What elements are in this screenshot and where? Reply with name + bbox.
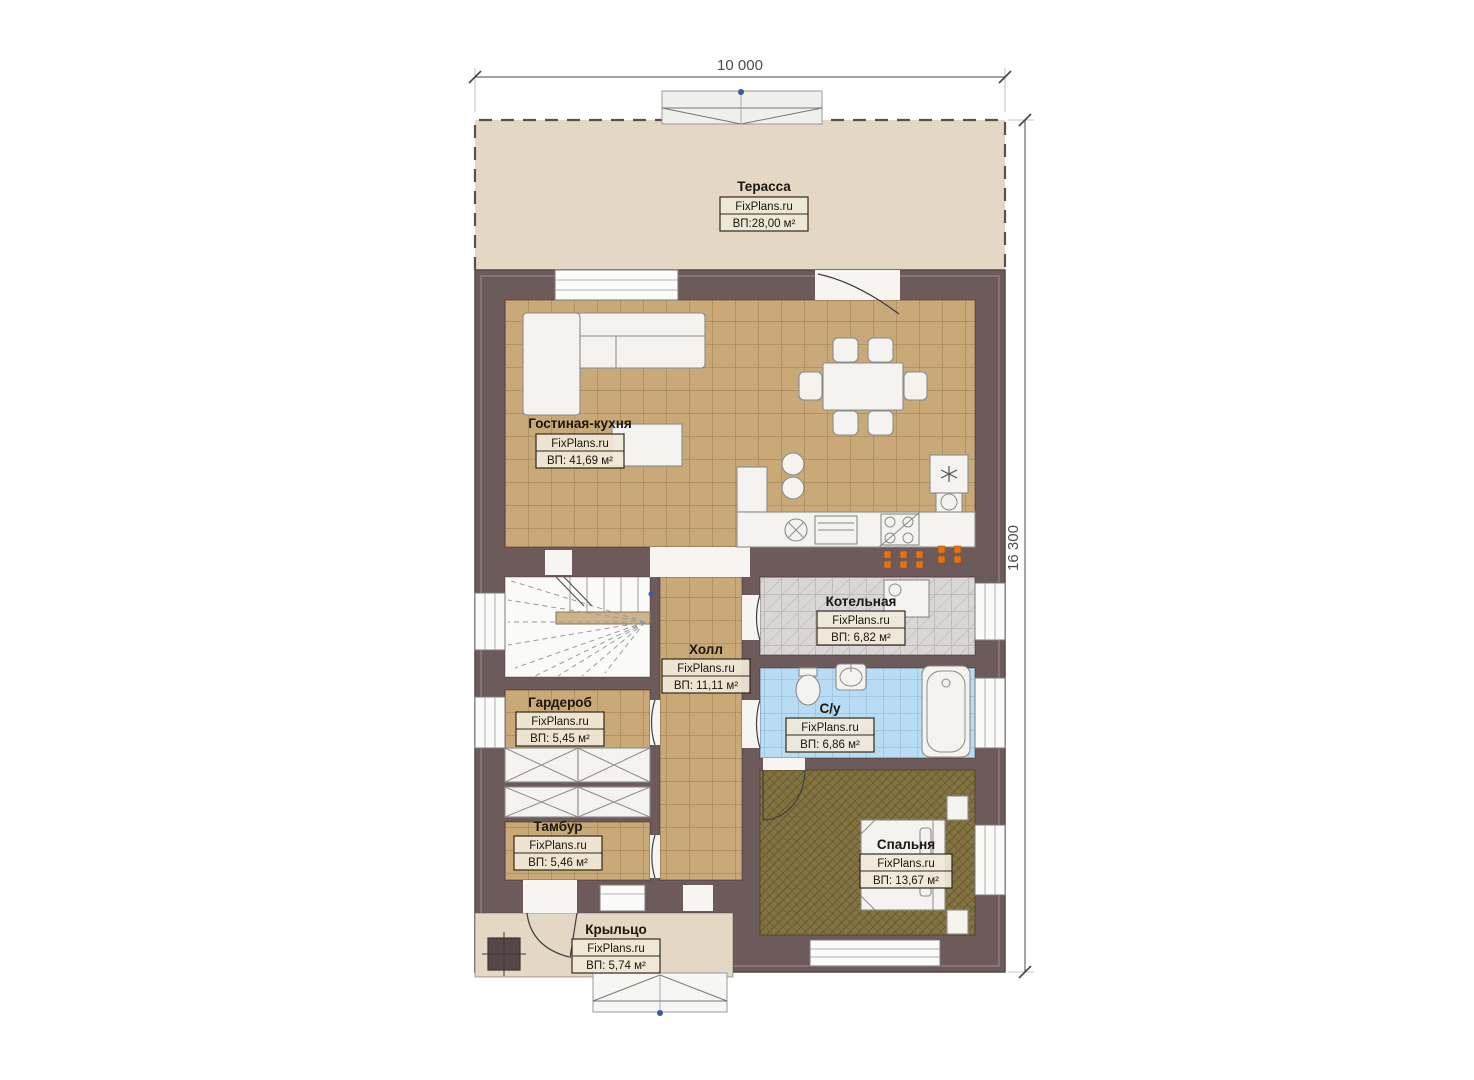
room-name: С/у	[819, 701, 841, 716]
nightstand	[947, 910, 968, 934]
canopy-bottom	[593, 973, 727, 1016]
stairs-floor	[505, 577, 650, 677]
dining-chair	[833, 338, 858, 362]
brand-label: FixPlans.ru	[531, 716, 589, 728]
window-right-boiler	[975, 583, 1005, 640]
bathroom-door-opening	[742, 700, 760, 748]
room-area: ВП: 5,46 м²	[528, 857, 588, 869]
window-right-bathroom	[975, 678, 1005, 748]
height-dimension-label: 16 300	[1005, 525, 1022, 571]
room-area: ВП: 6,82 м²	[831, 632, 891, 644]
brand-label: FixPlans.ru	[832, 615, 890, 627]
closet-unit	[505, 748, 578, 782]
room-label-boiler: Котельная FixPlans.ru ВП: 6,82 м²	[817, 594, 905, 645]
canopy-top	[662, 89, 822, 124]
window-right-bedroom	[975, 825, 1005, 895]
window-left-wardrobe	[475, 697, 505, 748]
bar-stool	[782, 477, 804, 499]
room-name: Гостиная-кухня	[528, 416, 631, 431]
room-name: Котельная	[826, 594, 897, 609]
wardrobe-closets	[505, 748, 650, 817]
window-bottom-bedroom	[810, 940, 940, 966]
bar-stool	[782, 453, 804, 475]
stove-icon	[878, 512, 920, 548]
hall-floor	[660, 577, 742, 880]
boiler-door-opening	[742, 595, 760, 640]
closet-unit	[578, 748, 650, 782]
brand-label: FixPlans.ru	[587, 943, 645, 955]
room-name: Холл	[689, 642, 723, 657]
brand-label: FixPlans.ru	[529, 840, 587, 852]
room-label-living-kitchen: Гостиная-кухня FixPlans.ru ВП: 41,69 м²	[528, 416, 631, 468]
room-area: ВП: 6,86 м²	[800, 739, 860, 751]
terrace-door-opening	[815, 270, 900, 300]
room-name: Гардероб	[528, 695, 592, 710]
dining-chair	[833, 411, 858, 435]
room-area: ВП:28,00 м²	[733, 218, 796, 230]
window-bottom-vestibule	[600, 885, 645, 911]
kitchen-small-sink	[936, 493, 962, 512]
floor-plan-page: 10 000 16 300	[0, 0, 1474, 1080]
dining-chair	[799, 372, 822, 400]
fridge-icon	[930, 455, 968, 493]
hall-porch-opening	[683, 885, 713, 911]
dimension-right: 16 300	[1005, 114, 1034, 978]
room-area: ВП: 11,11 м²	[674, 680, 738, 692]
sink-icon	[836, 664, 866, 690]
canopy-marker-dot	[657, 1010, 663, 1016]
closet-unit	[505, 787, 578, 817]
dishwasher	[815, 516, 857, 544]
window-top-living	[555, 270, 678, 300]
room-name: Тамбур	[534, 819, 583, 834]
brand-label: FixPlans.ru	[801, 722, 859, 734]
nightstand	[947, 796, 968, 820]
terrace-floor	[475, 120, 1005, 270]
canopy-marker-dot	[738, 89, 744, 95]
room-label-wardrobe: Гардероб FixPlans.ru ВП: 5,45 м²	[516, 695, 604, 746]
dining-chair	[904, 372, 927, 400]
dining-table	[823, 363, 903, 410]
room-area: ВП: 13,67 м²	[873, 875, 939, 887]
brand-label: FixPlans.ru	[551, 438, 609, 450]
room-area: ВП: 5,74 м²	[586, 960, 646, 972]
dining-chair	[868, 338, 893, 362]
room-area: ВП: 41,69 м²	[547, 455, 613, 467]
room-name: Терасса	[737, 179, 791, 194]
hall-living-opening	[650, 547, 750, 577]
brand-label: FixPlans.ru	[877, 858, 935, 870]
entrance-door-opening	[523, 880, 577, 913]
floor-plan-canvas: 10 000 16 300	[0, 0, 1474, 1080]
toilet-icon	[796, 668, 820, 705]
closet-unit	[578, 787, 650, 817]
terrace-area	[475, 120, 1005, 270]
kitchen-counter-corner	[737, 467, 767, 512]
bathtub-icon	[922, 666, 970, 757]
width-dimension-label: 10 000	[717, 57, 763, 74]
chimney-niche	[545, 550, 572, 575]
room-area: ВП: 5,45 м²	[530, 733, 590, 745]
brand-label: FixPlans.ru	[677, 663, 735, 675]
kitchen-sink-icon	[785, 519, 807, 541]
stair-marker-dot	[649, 592, 654, 597]
window-left-stairs	[475, 593, 505, 650]
dining-chair	[868, 411, 893, 435]
room-name: Спальня	[877, 837, 935, 852]
room-name: Крыльцо	[585, 922, 646, 937]
brand-label: FixPlans.ru	[735, 201, 793, 213]
bedroom-door-opening	[763, 758, 805, 770]
